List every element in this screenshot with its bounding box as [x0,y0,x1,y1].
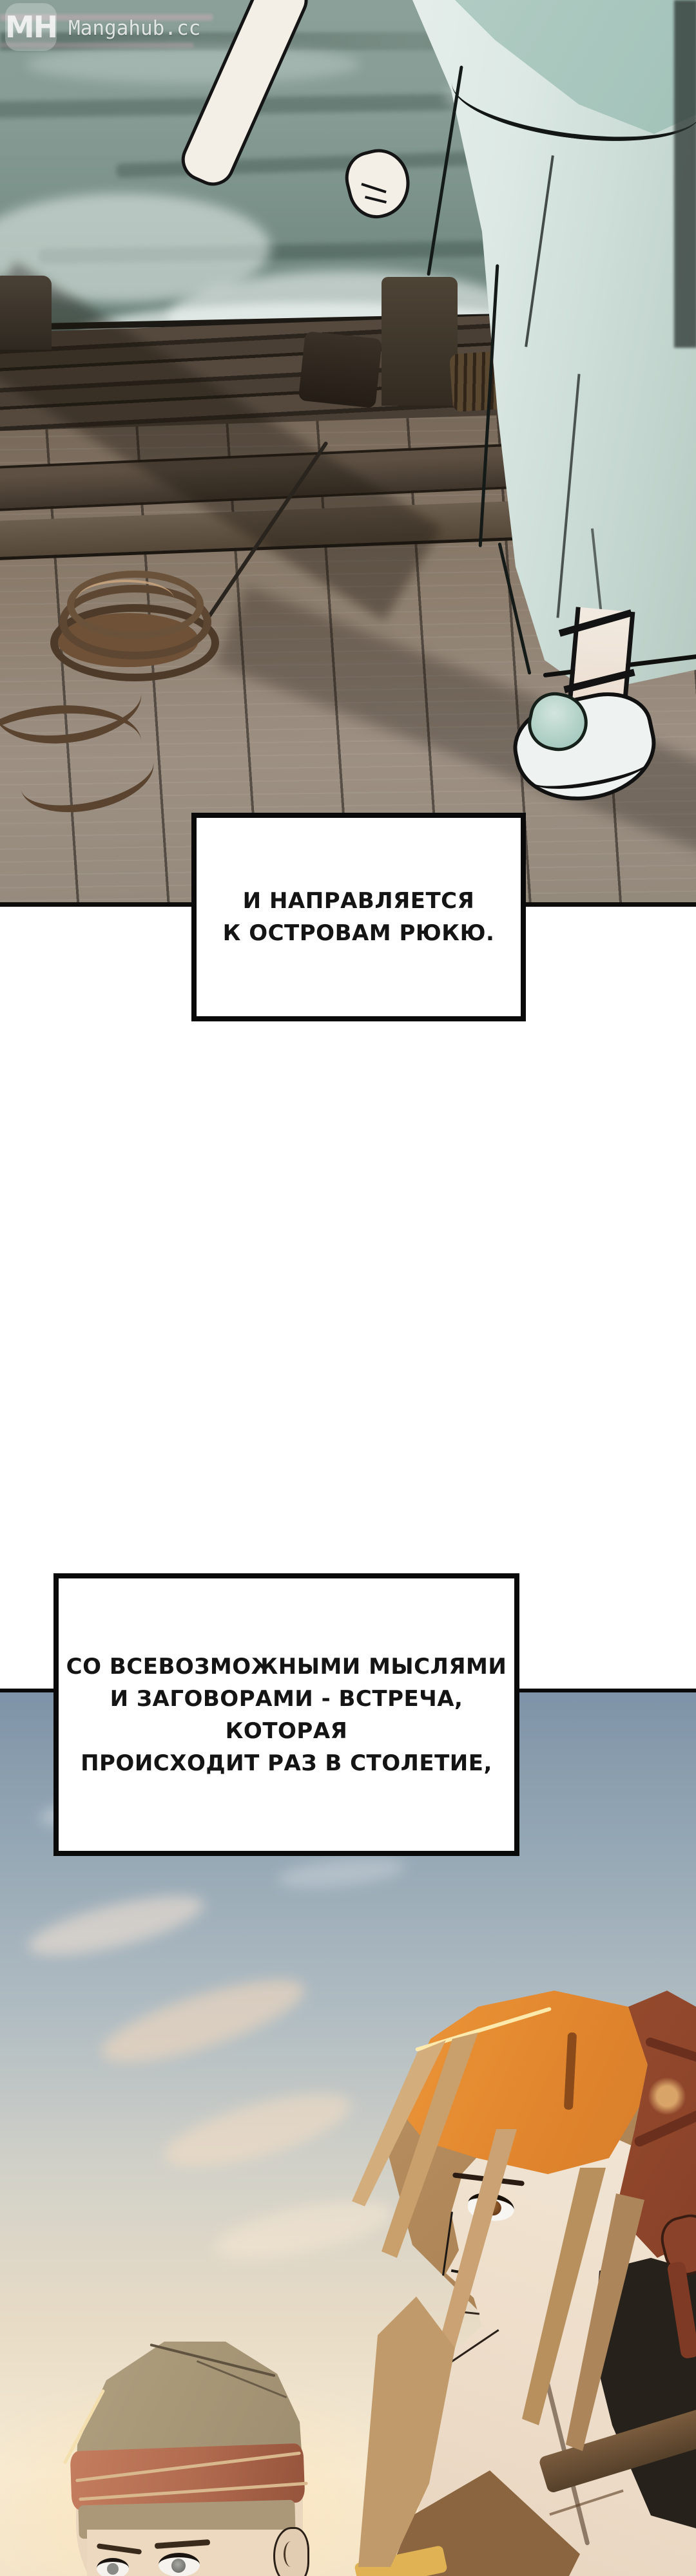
mangahub-logo-icon: MH [5,3,57,51]
ear-inner-line [284,2541,298,2567]
sea-foam [26,45,361,84]
mooring-post-left [0,276,52,350]
narration-line: И ЗАГОВОРАМИ - ВСТРЕЧА, КОТОРАЯ [59,1683,514,1747]
bandana-pattern-circle [648,2078,686,2115]
narration-box-1: И НАПРАВЛЯЕТСЯ К ОСТРОВАМ РЮКЮ. [191,813,526,1021]
cloud [210,2190,396,2271]
narration-line: И НАПРАВЛЯЕТСЯ [223,885,495,917]
cloud [94,1964,313,2078]
narration-text-1: И НАПРАВЛЯЕТСЯ К ОСТРОВАМ РЮКЮ. [223,885,495,949]
narration-line: ПРОИСХОДИТ РАЗ В СТОЛЕТИЕ, [59,1747,514,1779]
cloud [23,1884,208,1967]
narration-box-2: СО ВСЕВОЗМОЖНЫМИ МЫСЛЯМИ И ЗАГОВОРАМИ - … [53,1573,519,1856]
eye [159,2553,200,2576]
manga-reader-page: MH Mangahub.cc И НАПРАВЛЯЕТСЯ К ОСТРОВАМ… [0,0,696,2576]
narration-line: К ОСТРОВАМ РЮКЮ. [223,917,495,949]
panel-dock-scene: MH Mangahub.cc [0,0,696,907]
narration-line: СО ВСЕВОЗМОЖНЫМИ МЫСЛЯМИ [59,1651,514,1683]
dock-bollard [298,331,383,408]
narration-text-2: СО ВСЕВОЗМОЖНЫМИ МЫСЛЯМИ И ЗАГОВОРАМИ - … [59,1651,514,1779]
cloud [276,1853,407,1893]
cloud [158,2079,358,2182]
robe-shadow-edge [674,0,696,348]
rope-highlight [77,580,174,618]
iris [171,2559,186,2573]
mooring-post-mid [382,277,458,406]
iris [107,2563,119,2575]
eye [97,2558,129,2576]
site-watermark: Mangahub.cc [68,17,200,40]
